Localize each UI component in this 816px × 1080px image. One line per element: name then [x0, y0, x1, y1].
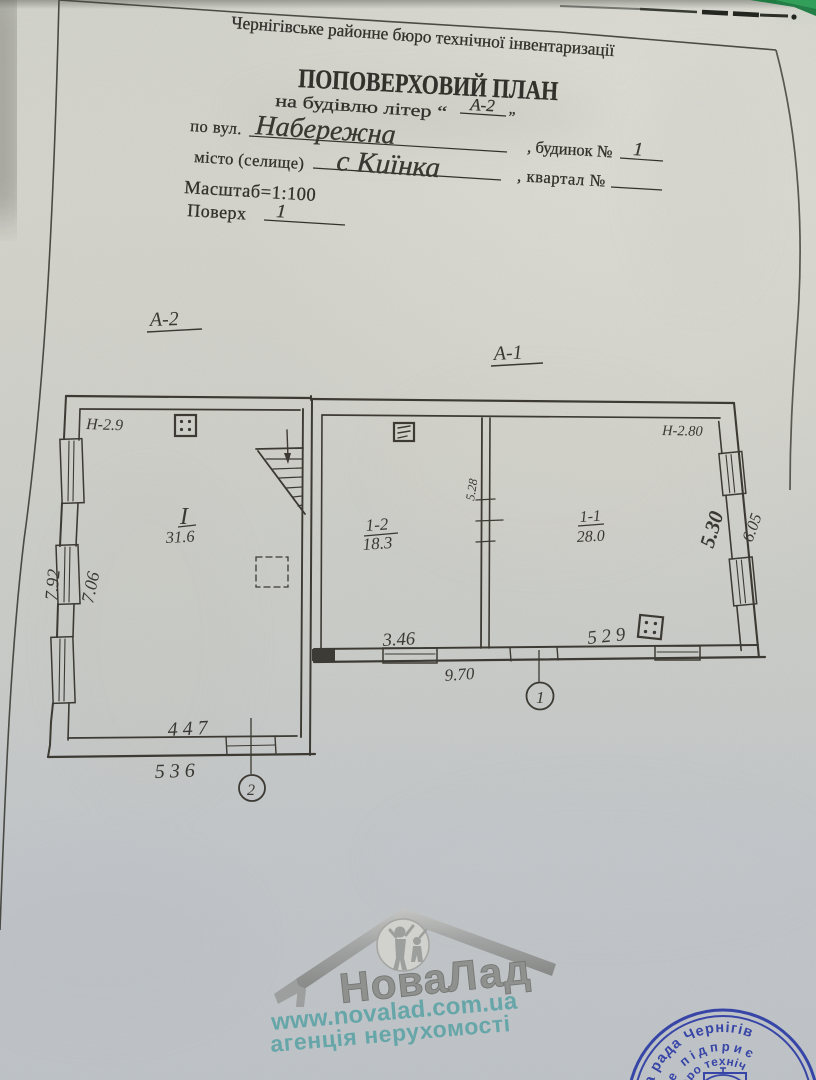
svg-text:2: 2	[247, 782, 255, 799]
svg-text:9.70: 9.70	[444, 664, 476, 685]
svg-text:1: 1	[536, 688, 545, 707]
svg-text:1-2: 1-2	[365, 514, 389, 535]
svg-text:1: 1	[633, 139, 644, 161]
svg-text:5 3 6: 5 3 6	[154, 760, 195, 783]
svg-text:”: ”	[508, 109, 516, 126]
svg-text:1: 1	[276, 201, 287, 223]
svg-text:А-2: А-2	[469, 95, 496, 115]
svg-text:по вул.: по вул.	[190, 116, 243, 138]
svg-text:28.0: 28.0	[576, 528, 605, 546]
svg-text:31.6: 31.6	[164, 526, 196, 547]
svg-text:3.46: 3.46	[381, 629, 416, 651]
svg-text:Н-2.9: Н-2.9	[85, 416, 123, 434]
svg-text:А-1: А-1	[491, 342, 523, 366]
svg-text:Поверх: Поверх	[187, 200, 247, 223]
svg-text:А-2: А-2	[147, 308, 179, 331]
svg-text:5 2 9: 5 2 9	[586, 624, 626, 649]
svg-text:4 4 7: 4 4 7	[167, 717, 209, 741]
svg-text:Н-2.80: Н-2.80	[661, 423, 704, 440]
svg-text:18.3: 18.3	[362, 533, 393, 554]
svg-text:7.92: 7.92	[41, 568, 64, 601]
svg-text:1-1: 1-1	[579, 508, 601, 526]
